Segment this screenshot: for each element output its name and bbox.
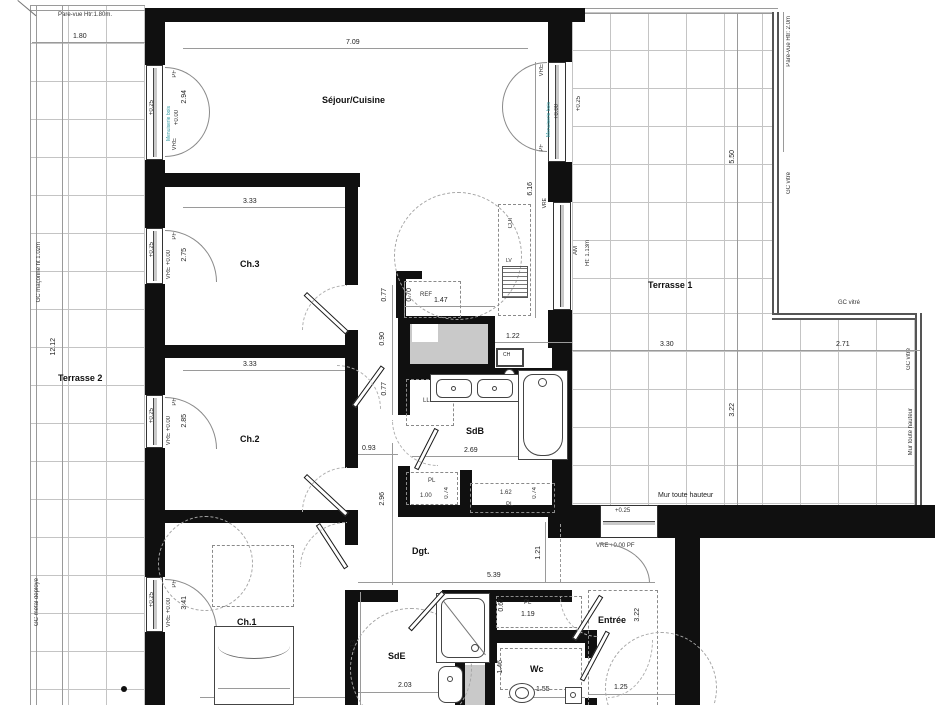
wc-zone xyxy=(500,648,582,690)
pare-vue-line xyxy=(783,12,784,152)
closet-label: PL xyxy=(428,478,435,484)
washing-machine-label: LL xyxy=(423,398,430,404)
door-arc xyxy=(392,420,438,466)
dim-line xyxy=(183,370,345,371)
gc-vitre-wall xyxy=(772,12,779,314)
bathtub-faucet xyxy=(538,378,547,387)
water-heater-label: CH xyxy=(503,353,510,358)
window-kitchen-am xyxy=(553,202,571,310)
closet-dim: 1.00 xyxy=(420,493,432,499)
dim: 2.69 xyxy=(464,447,478,454)
door-arc xyxy=(337,365,381,409)
level-mark: +0.25 xyxy=(576,96,582,111)
room-label-ch2: Ch.2 xyxy=(240,435,260,444)
wall xyxy=(548,8,572,62)
dim: 1.22 xyxy=(506,333,520,340)
room-label-terrasse2: Terrasse 2 xyxy=(58,374,102,383)
opening-mark: PF xyxy=(172,232,178,240)
dim-terrasse2-width: 1.80 xyxy=(73,33,87,40)
room-label-sdb: SdB xyxy=(466,427,484,436)
dim-terrasse1: 5.50 xyxy=(729,150,736,164)
turning-circle xyxy=(158,516,253,611)
door-arc xyxy=(300,522,347,567)
mur-toute-hauteur-note: Mur toute hauteur xyxy=(658,492,713,499)
door-arc xyxy=(302,285,347,330)
wall xyxy=(145,160,165,228)
sink-drain xyxy=(492,386,497,391)
dim-terrasse1: 2.71 xyxy=(836,341,850,348)
opening-mark: PF xyxy=(172,70,178,78)
closet-dim: 0.74 xyxy=(532,487,538,499)
opening-mark: VRE +0.00 xyxy=(166,598,172,627)
dim-window: 2.75 xyxy=(181,248,188,262)
menuiserie-note: Menuiserie bois xyxy=(547,102,552,137)
dim-terrasse1: 3.22 xyxy=(729,403,736,417)
level-mark: +0.00 xyxy=(174,110,180,125)
closet-label: PL xyxy=(506,502,513,508)
gc-maconne-note: GC maçonné ht 1.02m xyxy=(36,242,42,302)
opening-mark: AM xyxy=(573,246,579,255)
dim-line xyxy=(392,285,393,415)
dim: 0.77 xyxy=(381,382,388,396)
pare-vue-note: Pare-vue Htr:1.80m. xyxy=(58,12,112,18)
dim: 0.90 xyxy=(379,332,386,346)
terrasse2-tiles xyxy=(30,5,145,705)
window-swing-arc xyxy=(600,543,650,583)
dim: 3.33 xyxy=(243,361,257,368)
level-mark: +0.25 xyxy=(149,408,155,423)
wall xyxy=(345,187,358,285)
duct-notch xyxy=(412,324,438,342)
level-mark: +0.25 xyxy=(149,100,155,115)
terrasse1-parapet-line xyxy=(572,8,778,9)
dim: 5.39 xyxy=(487,572,501,579)
dim: 3.33 xyxy=(243,198,257,205)
gc-vitre-wall xyxy=(772,313,922,320)
toilet-cistern-dot xyxy=(570,692,576,698)
wall xyxy=(145,632,165,705)
level-mark: +0.25 xyxy=(149,592,155,607)
dim: 1.21 xyxy=(535,546,542,560)
dishwasher-label: LV xyxy=(506,259,512,264)
wall xyxy=(145,284,165,395)
dim-window: 2.94 xyxy=(181,90,188,104)
pare-vue-note: Pare-vue Htr: 2.0m xyxy=(786,16,792,67)
room-label-terrasse1: Terrasse 1 xyxy=(648,281,692,290)
dim-line xyxy=(572,350,920,351)
dim-line xyxy=(495,342,572,343)
closet-pl2 xyxy=(470,483,555,513)
menuiserie-note: Menuiserie bois xyxy=(167,106,172,141)
dim-window: 2.85 xyxy=(181,414,188,428)
level-entree-window: +0.25 xyxy=(615,508,630,514)
room-label-sejour: Séjour/Cuisine xyxy=(322,96,385,105)
opening-mark: PF xyxy=(172,398,178,406)
dim: 7.09 xyxy=(346,39,360,46)
dgt-entree-boundary xyxy=(560,524,561,582)
opening-mark: VRE xyxy=(172,138,178,150)
level-mark: +0.25 xyxy=(149,242,155,257)
closet-dim: 1.62 xyxy=(500,490,512,496)
gc-vitre-label: GC vitré xyxy=(906,348,912,370)
door-arc xyxy=(302,467,347,512)
north-dot xyxy=(121,686,127,692)
dim: 0.93 xyxy=(362,445,376,452)
wall xyxy=(658,505,935,538)
terrasse1-parapet-line xyxy=(572,13,778,14)
terrasse2-parapet-line xyxy=(30,5,31,705)
sink-drain xyxy=(451,386,456,391)
sde-washbasin xyxy=(438,666,463,703)
level-mark: +0.00 xyxy=(554,104,560,119)
gc-vitre-label: GC vitré xyxy=(786,172,792,194)
fridge-label: REF xyxy=(420,292,432,298)
terrasse2-parapet-line xyxy=(30,5,145,6)
opening-mark: PF xyxy=(539,144,545,152)
kitchen-counter xyxy=(498,204,531,316)
opening-mark: VRE +0.00 xyxy=(166,250,172,279)
dim-terrasse2-height: 12.12 xyxy=(50,338,57,356)
wall xyxy=(145,345,358,358)
dishwasher xyxy=(502,266,528,298)
dim-line xyxy=(32,42,145,43)
terrasse1-tiles xyxy=(572,12,772,313)
wall xyxy=(345,590,398,602)
dim-line xyxy=(358,582,655,583)
wall xyxy=(145,8,165,65)
bed-duvet-curve xyxy=(218,628,290,659)
dim-line xyxy=(737,14,738,508)
dim: 0.77 xyxy=(381,288,388,302)
wall xyxy=(145,173,360,187)
opening-mark: VRE xyxy=(543,198,548,208)
dim-line xyxy=(183,207,345,208)
opening-mark: VRE +0.00 xyxy=(166,416,172,445)
dim-line xyxy=(392,443,393,585)
wall xyxy=(548,505,600,538)
dim: 2.96 xyxy=(379,492,386,506)
dim-line xyxy=(183,48,528,49)
mur-toute-hauteur-note: Mur toute hauteur xyxy=(908,408,914,455)
dim-line xyxy=(535,62,536,318)
terrasse1-tiles xyxy=(572,313,920,508)
bed-foot-line xyxy=(218,688,290,689)
shower-drain xyxy=(471,644,479,652)
dim-terrasse1: 3.30 xyxy=(660,341,674,348)
wall xyxy=(485,660,495,705)
dim-line xyxy=(545,522,546,582)
closet-dim: 0.74 xyxy=(444,487,450,499)
kitchen-cui-label: CUI xyxy=(508,218,514,228)
gc-vitre-wall xyxy=(915,313,922,508)
room-label-ch3: Ch.3 xyxy=(240,260,260,269)
gc-vitre-label: GC vitré xyxy=(838,300,860,306)
floor-plan: Pare-vue Htr:1.80m. 1.80 GC maçonné ht 1… xyxy=(0,0,940,705)
closet-label: PL xyxy=(524,600,531,606)
room-label-dgt: Dgt. xyxy=(412,547,430,556)
dim-line xyxy=(62,5,63,705)
terrasse2-parapet-line xyxy=(30,10,145,11)
wall xyxy=(548,162,572,202)
opening-mark: VRE xyxy=(539,64,545,76)
window-height-note: Ht: 1.13m xyxy=(585,240,591,266)
fridge xyxy=(404,281,461,318)
dim: 6.16 xyxy=(527,182,534,196)
gc-metal-note: GC métal déployé xyxy=(34,578,40,626)
closet-pl1 xyxy=(406,472,458,505)
sde-washbasin-drain xyxy=(447,676,453,682)
wall xyxy=(145,8,585,22)
toilet-bowl-inner xyxy=(515,687,529,699)
